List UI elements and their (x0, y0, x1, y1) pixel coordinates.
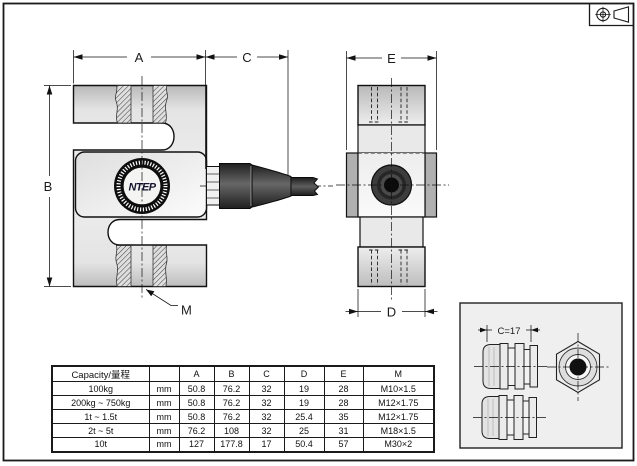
table-cell: mm (149, 396, 179, 410)
table-header-cell: M (363, 366, 434, 382)
table-cell: 25.4 (284, 410, 324, 424)
ntep-logo-text: NTEP (129, 182, 157, 194)
table-cell: 35 (324, 410, 363, 424)
table-cell: 25 (284, 424, 324, 438)
table-cell: 2t ~ 5t (52, 424, 149, 438)
table-cell: 1t ~ 1.5t (52, 410, 149, 424)
projection-symbol-box (590, 4, 634, 26)
dim-label-b: B (44, 179, 53, 194)
table-cell: 10t (52, 438, 149, 452)
first-angle-projection-icon (595, 7, 628, 22)
table-header-cell (149, 366, 179, 382)
dim-label-e: E (387, 51, 396, 66)
table-cell: M10×1.5 (363, 382, 434, 396)
table-cell: mm (149, 410, 179, 424)
dim-label-m: M (181, 303, 192, 318)
dim-label-a: A (135, 50, 144, 65)
table-header-cell: A (179, 366, 214, 382)
table-cell: 127 (179, 438, 214, 452)
dimension-table-body: 100kgmm50.876.2321928M10×1.5200kg ~ 750k… (52, 382, 434, 452)
table-cell: 50.8 (179, 382, 214, 396)
table-row: 10tmm127177.81750.457M30×2 (52, 438, 434, 452)
cable-assembly (207, 164, 319, 209)
table-cell: mm (149, 424, 179, 438)
table-row: 1t ~ 1.5tmm50.876.23225.435M12×1.75 (52, 410, 434, 424)
table-cell: 32 (249, 424, 284, 438)
drawing-sheet: NTEP (0, 0, 637, 466)
table-cell: 50.8 (179, 396, 214, 410)
dim-label-c: C (242, 50, 251, 65)
table-cell: 32 (249, 396, 284, 410)
table-cell: 28 (324, 382, 363, 396)
dim-label-d: D (387, 304, 396, 319)
dimension-table: Capacity/量程ABCDEM 100kgmm50.876.2321928M… (51, 365, 435, 453)
table-cell: 108 (214, 424, 249, 438)
table-cell: 19 (284, 382, 324, 396)
table-header-cell: D (284, 366, 324, 382)
detail-dim-label: C=17 (498, 326, 521, 337)
table-cell: 32 (249, 382, 284, 396)
table-cell: 50.4 (284, 438, 324, 452)
table-cell: mm (149, 438, 179, 452)
table-cell: 50.8 (179, 410, 214, 424)
table-cell: 32 (249, 410, 284, 424)
table-header-cell: C (249, 366, 284, 382)
table-header-cell: Capacity/量程 (52, 366, 149, 382)
cable-boot (220, 164, 253, 209)
table-header-cell: E (324, 366, 363, 382)
cable (291, 178, 319, 196)
table-cell: 31 (324, 424, 363, 438)
table-cell: 76.2 (179, 424, 214, 438)
table-header-cell: B (214, 366, 249, 382)
side-view (336, 78, 449, 300)
cable-boot-cone (252, 165, 291, 207)
table-cell: M30×2 (363, 438, 434, 452)
table-cell: mm (149, 382, 179, 396)
table-cell: 57 (324, 438, 363, 452)
table-cell: 76.2 (214, 396, 249, 410)
cable-gland-detail-box: C=17 (460, 303, 622, 448)
table-cell: M18×1.5 (363, 424, 434, 438)
table-cell: 28 (324, 396, 363, 410)
table-cell: 76.2 (214, 382, 249, 396)
table-cell: M12×1.75 (363, 396, 434, 410)
table-row: 100kgmm50.876.2321928M10×1.5 (52, 382, 434, 396)
front-view: NTEP (74, 76, 334, 298)
table-cell: 200kg ~ 750kg (52, 396, 149, 410)
table-cell: 17 (249, 438, 284, 452)
table-row: 2t ~ 5tmm76.2108322531M18×1.5 (52, 424, 434, 438)
table-cell: 19 (284, 396, 324, 410)
table-cell: 100kg (52, 382, 149, 396)
dimension-table-head-row: Capacity/量程ABCDEM (52, 366, 434, 382)
table-cell: 177.8 (214, 438, 249, 452)
connector-stub (207, 167, 220, 206)
table-row: 200kg ~ 750kgmm50.876.2321928M12×1.75 (52, 396, 434, 410)
table-cell: M12×1.75 (363, 410, 434, 424)
table-cell: 76.2 (214, 410, 249, 424)
